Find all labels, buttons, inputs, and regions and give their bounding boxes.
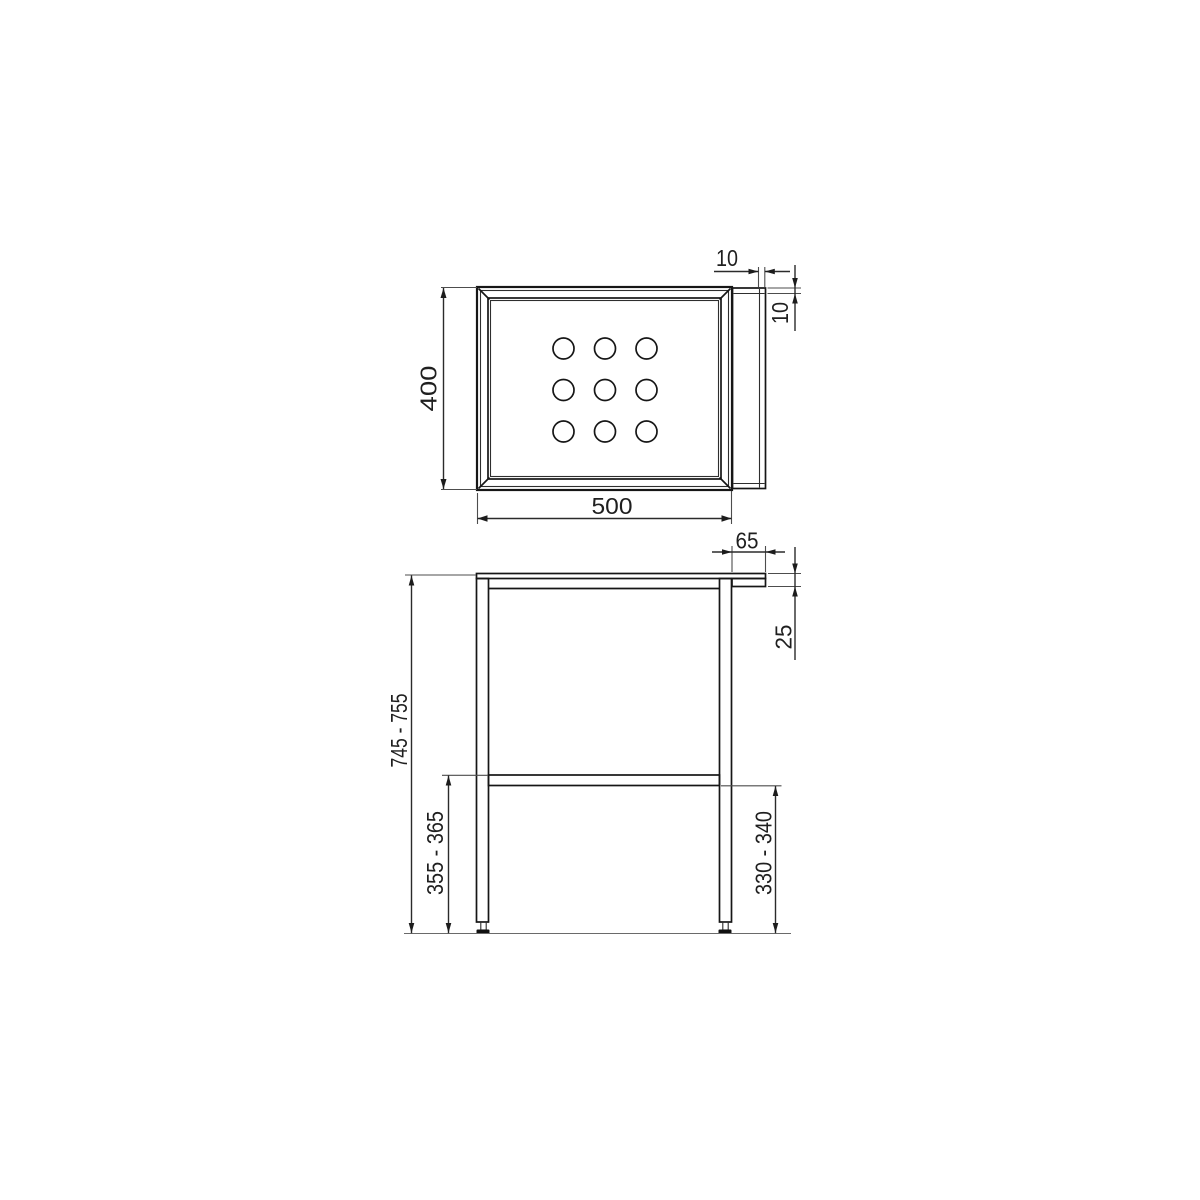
arrow-right <box>749 269 759 275</box>
dim-label-top-thickness: 25 <box>771 625 797 650</box>
arrow-up <box>409 576 415 586</box>
arrow-left <box>766 549 776 555</box>
arrow-left <box>765 269 775 275</box>
hole <box>553 380 574 401</box>
leg-left <box>477 579 489 923</box>
foot-stem <box>723 922 728 930</box>
dim-label-flange-width: 10 <box>716 245 738 271</box>
dim-rail-height-top: 355 - 365 <box>422 775 488 933</box>
hole-grid <box>553 338 657 442</box>
arrow-up <box>792 587 798 597</box>
arrow-down <box>792 564 798 574</box>
hole <box>595 338 616 359</box>
arrow-up <box>792 294 798 304</box>
seat-outer-rect <box>477 287 732 490</box>
arrow-down <box>773 923 779 933</box>
dim-rail-height-bottom: 330 - 340 <box>721 786 782 934</box>
foot-left <box>477 922 490 934</box>
seat-outer-companion-rect <box>481 291 729 487</box>
foot-stem <box>481 922 486 930</box>
seat-top-outline <box>477 287 732 490</box>
dim-bracket-depth-65: 65 <box>712 528 785 573</box>
arrow-right <box>722 549 732 555</box>
arrow-left <box>478 515 488 521</box>
dim-label-depth: 400 <box>416 366 442 412</box>
arrow-up <box>446 776 452 786</box>
dim-label-rail-height-bottom: 330 - 340 <box>751 811 777 895</box>
dim-flange-offset-10: 10 <box>767 265 801 331</box>
seat-inner-companion-rect <box>491 301 719 477</box>
dim-label-overall-height: 745 - 755 <box>386 694 412 768</box>
dim-label-flange-offset: 10 <box>767 302 793 324</box>
front-view: 65 25 745 - 755 355 - 365 <box>386 528 801 935</box>
arrow-right <box>722 515 732 521</box>
dim-label-rail-height-top: 355 - 365 <box>422 811 448 895</box>
arrow-up <box>441 288 447 298</box>
wall-bracket-top <box>733 288 766 489</box>
arrow-down <box>441 479 447 489</box>
hole <box>595 380 616 401</box>
leg-right <box>720 579 732 923</box>
hole <box>553 421 574 442</box>
arrow-down <box>409 923 415 933</box>
arrow-down <box>446 923 452 933</box>
seat-inner-rect <box>488 298 721 479</box>
dim-label-bracket-depth: 65 <box>736 528 759 554</box>
wall-bracket-front <box>732 579 766 587</box>
hole <box>636 338 657 359</box>
technical-drawing: 400 500 10 10 <box>0 0 1200 1200</box>
hole <box>636 421 657 442</box>
drawing-canvas: 400 500 10 10 <box>0 0 1200 1200</box>
hole <box>595 421 616 442</box>
arrow-up <box>773 786 779 796</box>
hole <box>553 338 574 359</box>
arrow-down <box>792 278 798 288</box>
dim-width-500: 500 <box>478 491 732 524</box>
dim-depth-400: 400 <box>416 288 478 490</box>
bracket-outer-rect <box>733 288 766 489</box>
dim-flange-width-10: 10 <box>714 245 790 287</box>
dim-top-thickness-25: 25 <box>768 547 801 660</box>
hole <box>636 380 657 401</box>
foot-right <box>719 922 732 934</box>
dim-label-width: 500 <box>592 493 633 519</box>
cross-rail <box>489 775 720 786</box>
top-view: 400 500 10 10 <box>416 245 802 524</box>
